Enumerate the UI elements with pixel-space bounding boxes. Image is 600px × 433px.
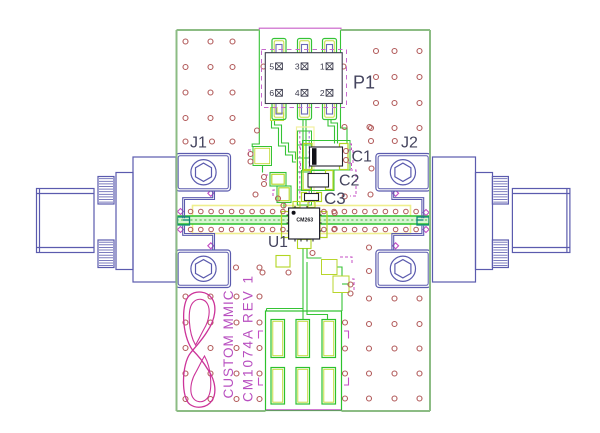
- svg-text:U1: U1: [268, 234, 288, 251]
- svg-text:2: 2: [320, 88, 325, 98]
- svg-text:3: 3: [295, 62, 300, 72]
- svg-text:C3: C3: [324, 189, 346, 208]
- svg-text:1: 1: [320, 62, 325, 72]
- svg-text:6: 6: [269, 88, 274, 98]
- svg-text:CM263: CM263: [296, 218, 313, 224]
- svg-text:CM1074A REV 1: CM1074A REV 1: [241, 274, 256, 402]
- svg-text:P1: P1: [353, 73, 375, 93]
- svg-text:C1: C1: [352, 149, 373, 166]
- svg-text:J1: J1: [190, 135, 207, 152]
- svg-text:4: 4: [295, 88, 300, 98]
- svg-text:5: 5: [269, 62, 274, 72]
- svg-text:J2: J2: [401, 135, 418, 152]
- svg-text:C2: C2: [339, 173, 360, 190]
- svg-text:CUSTOM MMIC: CUSTOM MMIC: [221, 290, 236, 399]
